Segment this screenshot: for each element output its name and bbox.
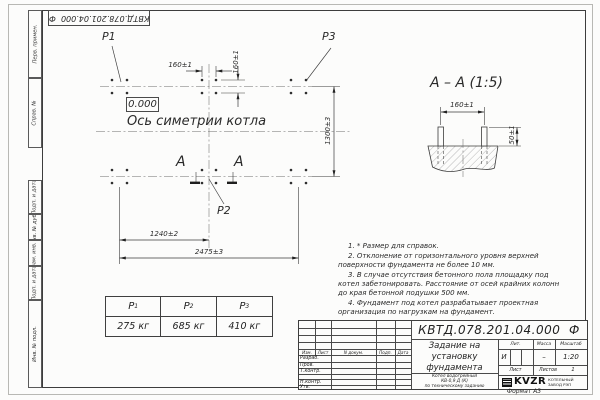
- doc-title-line-3: фундамента: [411, 362, 498, 373]
- dim-label-160-vertical: 160±1: [233, 47, 241, 77]
- col-podp: Подп.: [376, 349, 395, 355]
- top-stamp-doc-number: КВТД.078.201.04.000 Ф: [49, 14, 149, 23]
- margin-label: Инв. № подл.: [32, 326, 38, 362]
- lit-value: И: [498, 349, 510, 365]
- load-table: P1 P2 P3 275 кг 685 кг 410 кг: [105, 296, 273, 337]
- section-dim-160: 160±1: [446, 102, 478, 110]
- dim-label-1300: 1300±3: [325, 113, 333, 149]
- margin-box-vzam-inv: Взам. инв. №: [28, 240, 42, 266]
- mass-value: –: [533, 349, 555, 365]
- section-view-title: А – А (1:5): [430, 76, 503, 91]
- dim-label-1240: 1240±2: [144, 231, 184, 239]
- section-letter-right: А: [234, 155, 244, 170]
- dim-label-160-horizontal: 160±1: [158, 62, 192, 70]
- company-sub-line-2: ЗАВОД РЭП: [548, 382, 586, 387]
- drawing-sheet: Перв. примен. Справ. № Подп. и дата Инв.…: [0, 0, 600, 400]
- margin-label: Подп. и дата: [32, 180, 38, 214]
- title-block-doc-number: КВТД.078.201.04.000 Ф: [411, 321, 587, 339]
- elevation-mark: 0.000: [128, 99, 157, 110]
- margin-label: Взам. инв. №: [32, 240, 38, 266]
- margin-box-inv-dubl: Инв. № дубл.: [28, 214, 42, 240]
- margin-label: Подп. и дата: [32, 266, 38, 300]
- title-block: КВТД.078.201.04.000 Ф Изм. Лист N докум.…: [298, 320, 588, 390]
- point-label-p1: P1: [102, 31, 116, 43]
- load-table-header-p3: P3: [217, 297, 272, 317]
- sheets-value: 1: [565, 365, 581, 375]
- margin-box-sprav-n: Справ. №: [28, 78, 42, 148]
- lit-label: Лит.: [498, 339, 533, 349]
- section-letter-left: А: [176, 155, 186, 170]
- boiler-symmetry-axis-label: Ось симетрии котла: [127, 115, 266, 129]
- sheet-label: Лист: [498, 365, 533, 375]
- point-label-p3: P3: [322, 31, 336, 43]
- load-table-header-p1: P1: [106, 297, 161, 317]
- margin-box-podp-data-1: Подп. и дата: [28, 180, 42, 214]
- load-table-value-p3: 410 кг: [217, 317, 272, 337]
- point-label-p2: P2: [217, 205, 231, 217]
- sheets-label: Листов: [535, 365, 561, 375]
- kvzr-logo-text: KVZR: [514, 376, 546, 387]
- margin-box-podp-data-2: Подп. и дата: [28, 266, 42, 300]
- row-razrab: Разраб.: [300, 355, 331, 362]
- margin-box-perv-primen: Перв. примен.: [28, 10, 42, 78]
- col-data: Дата: [395, 349, 411, 355]
- format-note: Формат А3: [492, 389, 556, 396]
- kvzr-logo-icon: [502, 378, 512, 387]
- object-line-3: по техническому заданию: [411, 384, 498, 389]
- scale-label: Масштаб: [555, 339, 587, 349]
- col-ndoc: N докум.: [331, 349, 376, 355]
- margin-label: Инв. № дубл.: [32, 214, 38, 240]
- dim-label-2475: 2475±3: [186, 249, 232, 257]
- load-table-value-p1: 275 кг: [106, 317, 161, 337]
- margin-label: Справ. №: [32, 100, 38, 125]
- section-dim-50: 50±1: [509, 122, 517, 148]
- doc-title-line-2: установку: [411, 351, 498, 362]
- doc-title-line-1: Задание на: [411, 340, 498, 351]
- row-tkontr: Т.контр.: [300, 368, 331, 374]
- row-utv: Утв.: [300, 385, 331, 389]
- mass-label: Масса: [533, 339, 555, 349]
- load-table-header-p2: P2: [161, 297, 216, 317]
- scale-value: 1:20: [555, 349, 587, 365]
- note-4: 4. Фундамент под котел разрабатывает про…: [338, 299, 566, 317]
- margin-label: Перв. примен.: [32, 25, 38, 64]
- top-stamp-box: КВТД.078.201.04.000 Ф: [48, 10, 150, 26]
- note-3: 3. В случае отсутствия бетонного пола пл…: [338, 271, 566, 298]
- load-table-value-p2: 685 кг: [161, 317, 216, 337]
- notes-block: 1. * Размер для справок. 2. Отклонение о…: [338, 242, 566, 318]
- note-1: 1. * Размер для справок.: [338, 242, 566, 251]
- margin-box-inv-podl: Инв. № подл.: [28, 300, 42, 388]
- note-2: 2. Отклонение от горизонтального уровня …: [338, 252, 566, 270]
